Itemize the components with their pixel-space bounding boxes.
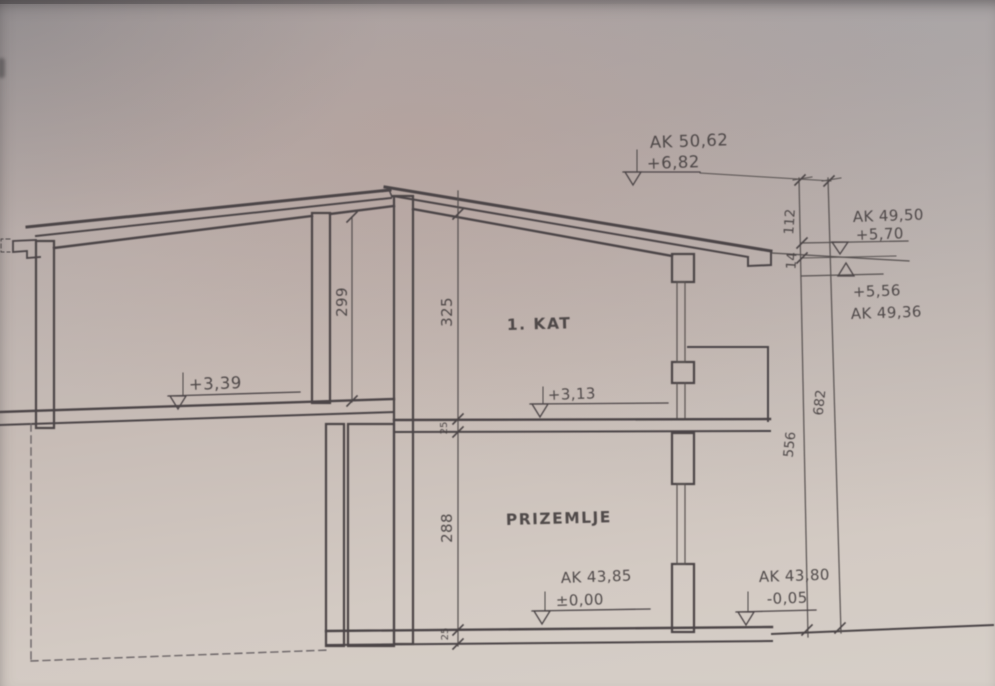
label-ground-rel: ±0,00 <box>556 590 605 610</box>
label-terrain-rel: -0,05 <box>767 589 808 608</box>
marker-triangle-ridge <box>625 172 641 185</box>
marker-triangle-000 <box>534 611 550 624</box>
label-ridge-rel: +6,82 <box>646 152 700 173</box>
labels: AK 50,62 +6,82 AK 49,50 +5,70 +5,56 AK 4… <box>188 130 924 640</box>
ground-floor-shaft <box>348 424 394 646</box>
label-first-floor: 1. KAT <box>507 314 572 334</box>
dim-slab-middle: 25 <box>439 422 450 435</box>
photo-of-drawing: AK 50,62 +6,82 AK 49,50 +5,70 +5,56 AK 4… <box>0 0 995 686</box>
floor-slabs <box>0 399 993 645</box>
dim-299: 299 <box>333 287 351 317</box>
label-terrain-ak: AK 43,80 <box>759 566 831 586</box>
marker-triangle-eave-top <box>832 242 848 254</box>
section-drawing: AK 50,62 +6,82 AK 49,50 +5,70 +5,56 AK 4… <box>0 0 995 686</box>
label-ground-ak: AK 43,85 <box>561 567 633 587</box>
label-eave-top-rel: +5,70 <box>856 224 905 244</box>
label-ridge-ak: AK 50,62 <box>649 130 728 152</box>
gutter-dashed-edge <box>1 239 10 252</box>
dim-112: 112 <box>781 208 799 235</box>
window-openings <box>677 282 685 564</box>
right-wall-sill <box>672 362 694 383</box>
ground-floor-wall-left <box>326 424 344 646</box>
label-ground-floor: PRIZEMLJE <box>506 508 612 529</box>
label-313: +3,13 <box>548 384 597 404</box>
marker-triangle-005 <box>738 612 754 625</box>
dashed-outline <box>31 424 330 661</box>
marker-triangle-eave-bottom <box>838 263 854 276</box>
dim-14: 14 <box>783 252 800 270</box>
right-wall-base <box>672 564 694 632</box>
dim-325: 325 <box>438 297 456 327</box>
interior-wall-upper <box>312 213 330 403</box>
right-wall-beam-mid <box>672 433 694 484</box>
label-eave-bottom-rel: +5,56 <box>853 281 902 301</box>
label-eave-top-ak: AK 49,50 <box>853 206 925 226</box>
balcony-element <box>688 347 768 421</box>
dim-288: 288 <box>438 513 456 543</box>
left-exterior-wall <box>36 241 54 428</box>
dim-556: 556 <box>781 431 800 458</box>
dim-slab-bottom: 25 <box>440 628 451 641</box>
label-339: +3,39 <box>188 373 242 394</box>
right-wall-beam-top <box>672 254 694 282</box>
marker-triangle-313 <box>532 404 548 417</box>
right-eave-gutter <box>748 251 771 266</box>
label-eave-bottom-ak: AK 49,36 <box>851 303 923 323</box>
dim-682: 682 <box>811 389 830 416</box>
